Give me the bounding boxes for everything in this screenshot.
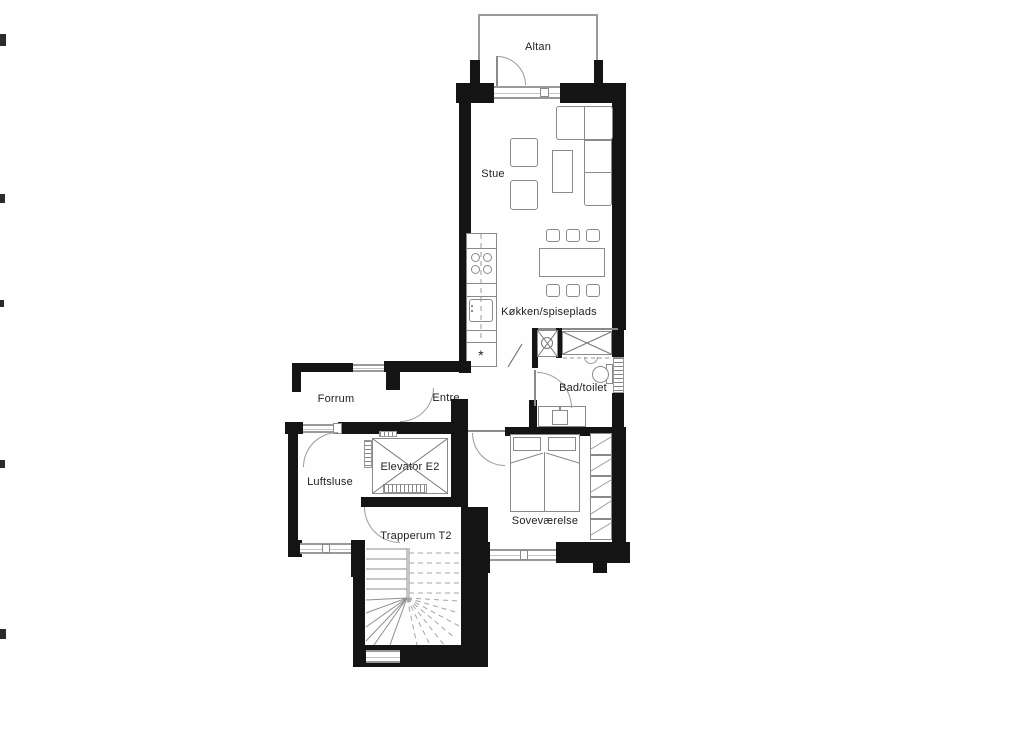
kitchen-door-leaf	[508, 344, 522, 367]
window-mullion	[520, 550, 528, 560]
sink-tap	[471, 305, 473, 307]
bed-center-line	[544, 452, 545, 511]
floor-plan: Altan Stue Køkken/spiseplads *	[0, 0, 1024, 748]
scan-artifact	[0, 194, 5, 203]
stairs-dashed-lines	[407, 553, 459, 645]
room-label-stue: Stue	[481, 168, 504, 180]
elevator-door-bottom	[383, 484, 427, 493]
dining-chair	[566, 229, 580, 242]
wall-segment	[386, 371, 400, 390]
room-label-forrum: Forrum	[318, 393, 355, 405]
pillow	[548, 437, 576, 451]
counter-divider	[467, 330, 496, 331]
bedroom-door-threshold	[468, 430, 505, 432]
scan-artifact	[0, 300, 4, 307]
wall-segment	[470, 60, 480, 84]
scan-artifact	[0, 629, 6, 639]
stairs-lines	[366, 548, 409, 645]
wall-segment	[612, 98, 626, 330]
dining-chair	[566, 284, 580, 297]
wall-segment	[556, 542, 630, 563]
wall-segment	[451, 399, 468, 507]
wall-segment	[612, 330, 624, 357]
wall-segment	[612, 428, 626, 545]
bath-duct	[613, 357, 624, 393]
counter-divider	[467, 248, 496, 249]
room-label-bedroom: Soveværelse	[512, 515, 578, 527]
room-label-stairwell: Trapperum T2	[380, 530, 451, 542]
dining-chair	[546, 229, 560, 242]
wall-segment	[461, 507, 488, 648]
dining-chair	[586, 284, 600, 297]
counter-divider	[467, 342, 496, 343]
coffee-table	[552, 150, 573, 193]
cooktop-burner	[471, 265, 480, 274]
wardrobe-cell	[590, 455, 612, 476]
wardrobe-cell	[590, 519, 612, 540]
cooktop-burner	[471, 253, 480, 262]
wall-segment	[292, 363, 353, 372]
washing-machine	[537, 330, 558, 357]
wardrobe-cell	[590, 476, 612, 497]
towel-arc	[584, 357, 598, 364]
room-label-bath: Bad/toilet	[559, 382, 607, 394]
window-mullion	[540, 88, 549, 97]
armchair	[510, 138, 538, 167]
forrum-window	[353, 364, 384, 372]
entre-door-swing	[400, 388, 434, 422]
cooktop-burner	[483, 253, 492, 262]
bedroom-door-swing	[472, 433, 505, 466]
wall-segment	[593, 563, 607, 573]
wardrobe-cell	[590, 497, 612, 519]
scan-artifact	[0, 34, 6, 46]
dining-table	[539, 248, 605, 277]
stairwell-window	[366, 650, 400, 663]
sofa-cushion-line	[584, 107, 585, 139]
room-label-kitchen: Køkken/spiseplads	[501, 306, 597, 318]
dining-chair	[546, 284, 560, 297]
wardrobe-cell	[590, 433, 612, 455]
sofa-cushion-line	[585, 140, 611, 141]
wall-segment	[594, 60, 603, 84]
armchair	[510, 180, 538, 210]
sink-tap	[471, 310, 473, 312]
counter-divider	[467, 296, 496, 297]
bath-counter	[562, 331, 612, 355]
room-label-luftsluse: Luftsluse	[307, 476, 353, 488]
wall-segment	[612, 393, 624, 430]
counter-divider	[467, 283, 496, 284]
plan-linework	[0, 0, 1024, 748]
toilet-bowl	[592, 366, 609, 383]
window-mullion	[322, 544, 330, 553]
dining-chair	[586, 229, 600, 242]
room-label-elevator: Elevator E2	[377, 461, 442, 473]
scan-artifact	[0, 460, 5, 468]
room-label-altan: Altan	[525, 41, 551, 53]
elevator-door-top	[379, 431, 397, 437]
pillow	[513, 437, 541, 451]
bath-door-leaf	[534, 370, 536, 406]
wall-segment	[292, 363, 301, 392]
wall-segment	[288, 422, 298, 547]
wall-segment	[338, 422, 468, 434]
sofa-cushion-line	[585, 172, 611, 173]
cooktop-burner	[483, 265, 492, 274]
kitchen-vent-symbol: *	[478, 347, 484, 363]
bath-sink-basin	[552, 410, 568, 425]
luftsluse-door-swing	[303, 432, 338, 467]
balcony-opening-sill	[494, 86, 560, 99]
wall-segment	[361, 497, 466, 507]
elevator-door-left	[364, 440, 372, 468]
